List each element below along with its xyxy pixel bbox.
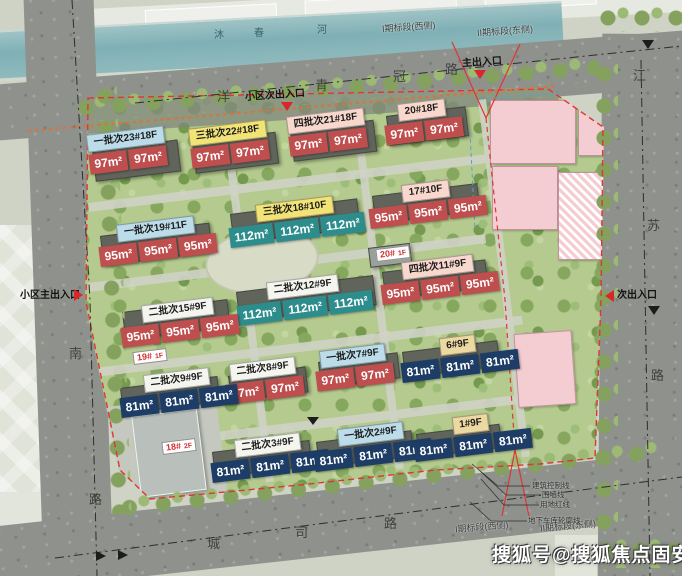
road-name-char: 苏	[647, 219, 660, 232]
building-label: 1#9F	[451, 413, 490, 435]
legend-label-0: 建筑控制线	[532, 482, 570, 490]
road-name-char: 路	[651, 369, 664, 382]
road-name-char: 路	[89, 493, 102, 506]
road-name-char: 城	[207, 537, 220, 550]
road-name-char: 司	[295, 526, 308, 539]
entrance-label-west-main: 小区主出入口	[20, 291, 80, 301]
road-name-char: 青	[315, 79, 328, 92]
river-name-char: 河	[317, 26, 327, 36]
building-label: 6#9F	[438, 334, 477, 356]
site-plan-map: 一批次23#18F 97m²97m² 三批次22#18F 97m²97m² 四批…	[0, 0, 682, 576]
legend-label-2: 用地红线	[540, 501, 570, 509]
road-name-char: 冠	[393, 70, 406, 83]
legend-leader-lines	[470, 464, 541, 521]
legend-label-3: 地下车库轮廓线	[528, 517, 581, 525]
entrance-arrow-icon	[74, 289, 83, 301]
road-name-char: 洋	[217, 90, 230, 103]
entrance-arrow-icon	[605, 290, 614, 302]
road-name-char: 路	[384, 517, 397, 530]
entrance-arrow-icon	[474, 70, 486, 79]
centerline-east	[641, 60, 650, 576]
legend-label-1: 围墙线	[542, 491, 565, 499]
entrance-label-east-secondary: 次出入口	[617, 291, 657, 301]
stage-split-south	[502, 450, 529, 516]
road-name-char: 南	[69, 347, 82, 360]
road-name-char: 江	[633, 69, 646, 82]
river-name-char: 春	[254, 29, 264, 39]
road-name-char: 路	[445, 63, 458, 76]
watermark: 搜狐号@搜狐焦点固安站	[492, 545, 682, 568]
river-name-char: 沐	[214, 31, 224, 41]
centerline-west	[72, 0, 97, 576]
entrance-arrow-icon	[281, 102, 293, 111]
stage-split-north	[452, 42, 520, 118]
